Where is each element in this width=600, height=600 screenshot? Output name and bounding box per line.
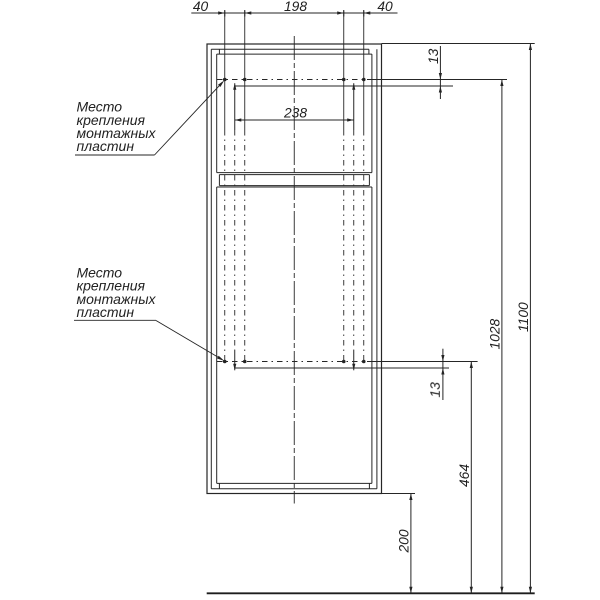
svg-text:40: 40: [377, 0, 393, 14]
svg-text:пластин: пластин: [77, 304, 135, 320]
svg-text:1100: 1100: [516, 302, 531, 332]
svg-text:40: 40: [193, 0, 209, 14]
svg-text:13: 13: [428, 382, 443, 398]
svg-text:200: 200: [397, 529, 412, 553]
svg-text:198: 198: [284, 0, 307, 14]
svg-text:238: 238: [283, 106, 307, 121]
svg-text:пластин: пластин: [77, 138, 135, 154]
svg-text:13: 13: [426, 48, 441, 64]
svg-text:464: 464: [457, 464, 472, 487]
svg-text:1028: 1028: [488, 318, 503, 349]
